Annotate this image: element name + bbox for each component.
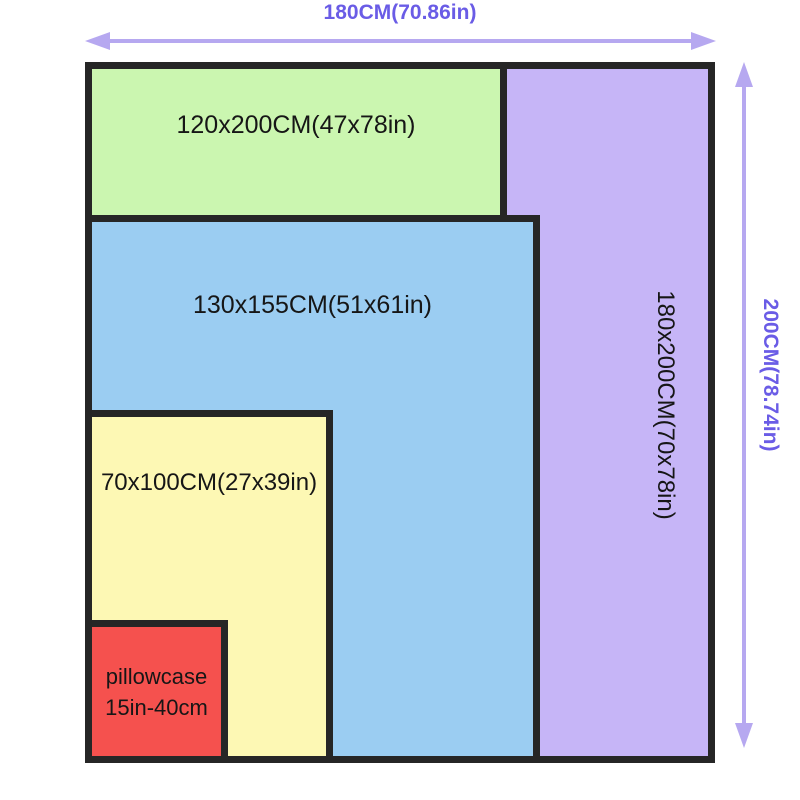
rect-180x200cm-label: 180x200CM(70x78in) <box>651 290 679 519</box>
rect-120x200cm <box>85 62 507 222</box>
arrow-down-icon <box>735 723 753 748</box>
horizontal-dimension-arrow <box>106 39 694 43</box>
rect-130x155cm-label: 130x155CM(51x61in) <box>85 290 540 320</box>
pillowcase-label-line2: 15in-40cm <box>85 692 228 723</box>
pillowcase-label-line1: pillowcase <box>85 661 228 692</box>
rect-70x100cm-label: 70x100CM(27x39in) <box>85 468 333 498</box>
right-dimension-label: 200CM(78.74in) <box>758 299 782 452</box>
size-comparison-diagram: 180CM(70.86in) 200CM(78.74in) 120x200CM(… <box>0 0 800 800</box>
top-dimension-label: 180CM(70.86in) <box>85 1 715 25</box>
vertical-dimension-arrow <box>742 84 746 728</box>
arrow-right-icon <box>691 32 716 50</box>
arrow-left-icon <box>85 32 110 50</box>
arrow-up-icon <box>735 62 753 87</box>
rect-pillowcase-label: pillowcase 15in-40cm <box>85 661 228 723</box>
rect-120x200cm-label: 120x200CM(47x78in) <box>85 110 507 140</box>
